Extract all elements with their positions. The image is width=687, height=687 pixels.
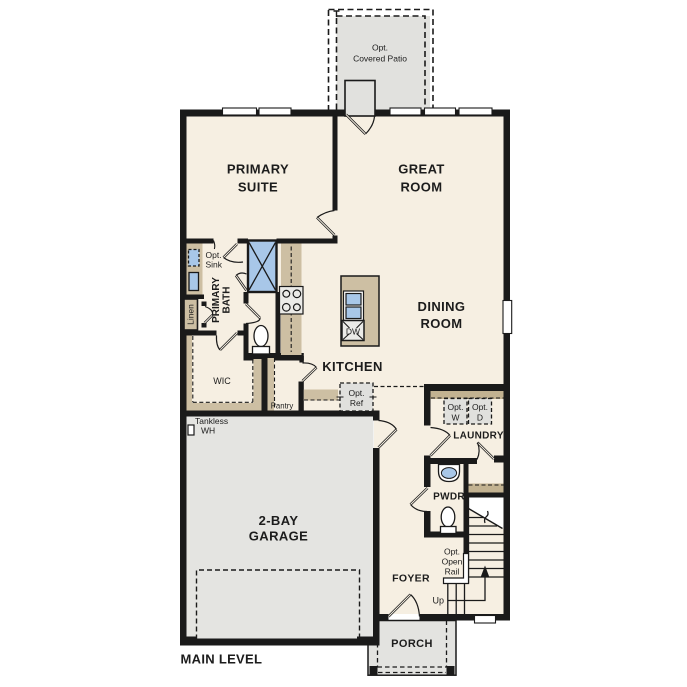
svg-text:PRIMARY: PRIMARY (227, 162, 289, 177)
svg-text:FOYER: FOYER (392, 573, 430, 585)
svg-text:DW: DW (346, 327, 360, 337)
svg-text:DINING: DINING (418, 299, 466, 314)
svg-text:2-BAY: 2-BAY (259, 513, 299, 528)
svg-text:Opt.: Opt. (472, 402, 488, 412)
svg-text:WH: WH (201, 426, 215, 436)
svg-text:Open: Open (442, 557, 463, 567)
svg-text:Covered Patio: Covered Patio (353, 54, 407, 64)
svg-text:D: D (477, 413, 483, 423)
svg-text:SUITE: SUITE (238, 180, 278, 195)
svg-text:Opt.: Opt. (206, 250, 222, 260)
svg-text:PORCH: PORCH (391, 638, 433, 650)
svg-text:ROOM: ROOM (420, 316, 462, 331)
svg-text:PRIMARY: PRIMARY (211, 277, 222, 323)
svg-text:Tankless: Tankless (195, 416, 228, 426)
svg-text:Opt.: Opt. (444, 547, 460, 557)
svg-text:GREAT: GREAT (398, 162, 445, 177)
svg-text:W: W (451, 413, 459, 423)
svg-text:Opt.: Opt. (372, 43, 388, 53)
svg-text:Pantry: Pantry (271, 402, 294, 411)
svg-text:Sink: Sink (206, 260, 223, 270)
svg-text:BATH: BATH (222, 286, 233, 313)
svg-text:LAUNDRY: LAUNDRY (453, 431, 504, 442)
svg-text:Linen: Linen (186, 304, 196, 325)
svg-text:Opt.: Opt. (348, 388, 364, 398)
svg-text:Up: Up (433, 596, 445, 606)
svg-text:MAIN LEVEL: MAIN LEVEL (181, 652, 263, 667)
svg-text:WIC: WIC (213, 376, 231, 386)
svg-text:KITCHEN: KITCHEN (322, 359, 383, 374)
svg-text:ROOM: ROOM (400, 180, 442, 195)
svg-text:Rail: Rail (445, 567, 460, 577)
svg-text:PWDR: PWDR (433, 492, 465, 503)
svg-text:Opt.: Opt. (447, 402, 463, 412)
svg-text:GARAGE: GARAGE (249, 529, 308, 544)
svg-text:Ref: Ref (350, 398, 364, 408)
